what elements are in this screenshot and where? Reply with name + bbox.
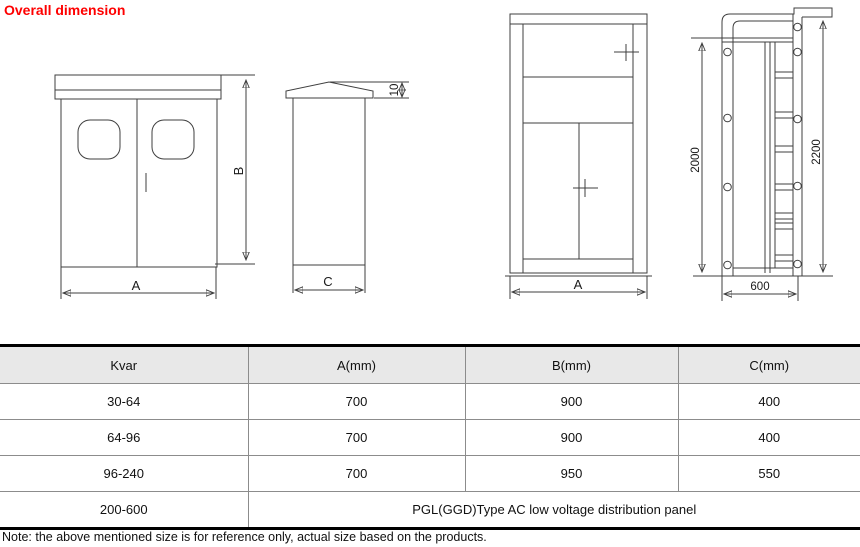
col-header-kvar: Kvar (0, 346, 248, 384)
cell-kvar: 200-600 (0, 492, 248, 529)
cell-a: 700 (248, 456, 465, 492)
dimension-table: Kvar A(mm) B(mm) C(mm) 30-64 700 900 400… (0, 344, 860, 530)
dim-label-2000: 2000 (690, 147, 702, 173)
col-header-b: B(mm) (465, 346, 678, 384)
cell-b: 950 (465, 456, 678, 492)
door-vent-right (152, 120, 194, 159)
dim-label-b: B (231, 167, 246, 176)
lifting-profile (722, 8, 832, 40)
table-row: 96-240 700 950 550 (0, 456, 860, 492)
dim-label-600: 600 (750, 281, 769, 293)
dim-label-a: A (132, 278, 141, 293)
cell-kvar: 96-240 (0, 456, 248, 492)
footnote: Note: the above mentioned size is for re… (2, 530, 487, 544)
cell-b: 900 (465, 384, 678, 420)
cell-a: 700 (248, 420, 465, 456)
cell-kvar: 30-64 (0, 384, 248, 420)
dim-label-c: C (323, 274, 332, 289)
table-row: 64-96 700 900 400 (0, 420, 860, 456)
dim-label-panel-a: A (574, 277, 583, 292)
cell-kvar: 64-96 (0, 420, 248, 456)
cell-c: 400 (678, 420, 860, 456)
cell-a: 700 (248, 384, 465, 420)
cabinet-front-view: B A (55, 75, 255, 299)
panel-side-view: 2000 2200 600 (690, 8, 833, 301)
handle-cross-bottom (573, 179, 598, 197)
cell-merged-description: PGL(GGD)Type AC low voltage distribution… (248, 492, 860, 529)
col-header-a: A(mm) (248, 346, 465, 384)
cell-b: 900 (465, 420, 678, 456)
col-header-c: C(mm) (678, 346, 860, 384)
handle-cross-top (614, 44, 639, 61)
bolt-holes-right (794, 23, 802, 268)
cell-c: 550 (678, 456, 860, 492)
table-header-row: Kvar A(mm) B(mm) C(mm) (0, 346, 860, 384)
dim-label-2200: 2200 (811, 139, 823, 165)
bolt-holes-left (724, 48, 732, 269)
table-row-merged: 200-600 PGL(GGD)Type AC low voltage dist… (0, 492, 860, 529)
cabinet-side-view: C 10 (286, 82, 409, 293)
dim-label-10: 10 (389, 84, 401, 97)
table-row: 30-64 700 900 400 (0, 384, 860, 420)
door-vent-left (78, 120, 120, 159)
cell-c: 400 (678, 384, 860, 420)
panel-front-view: A (505, 14, 652, 299)
dimension-drawings: B A C 10 (0, 0, 860, 338)
